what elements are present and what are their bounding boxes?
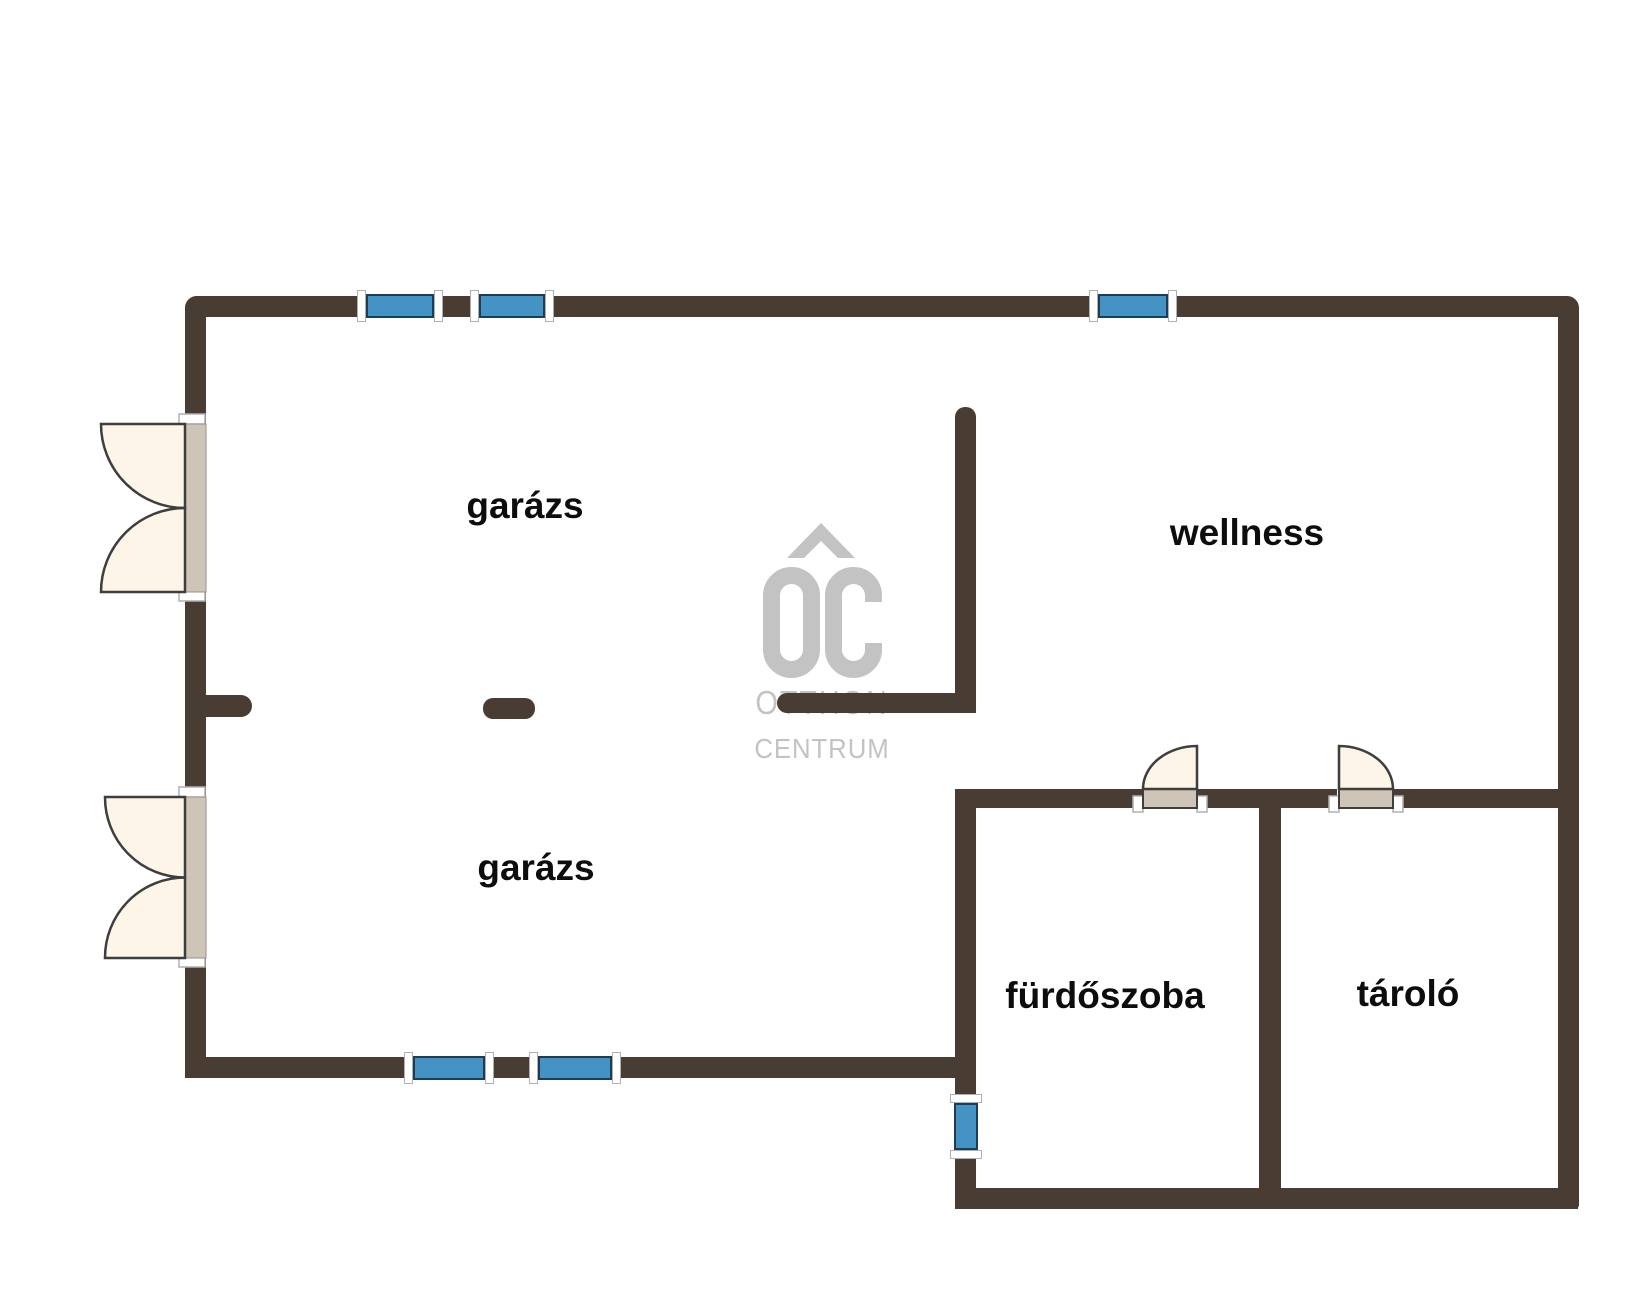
room-label-bathroom: fürdőszoba	[945, 972, 1265, 1020]
floor-plan: OC OTTHON CENTRUM	[0, 0, 1645, 1291]
room-label-storage: tároló	[1248, 970, 1568, 1018]
room-label-garage-bottom: garázs	[376, 844, 696, 892]
labels-layer: garázs garázs wellness fürdőszoba tároló	[0, 0, 1645, 1291]
room-label-garage-top: garázs	[365, 482, 685, 530]
room-label-wellness: wellness	[1087, 509, 1407, 557]
